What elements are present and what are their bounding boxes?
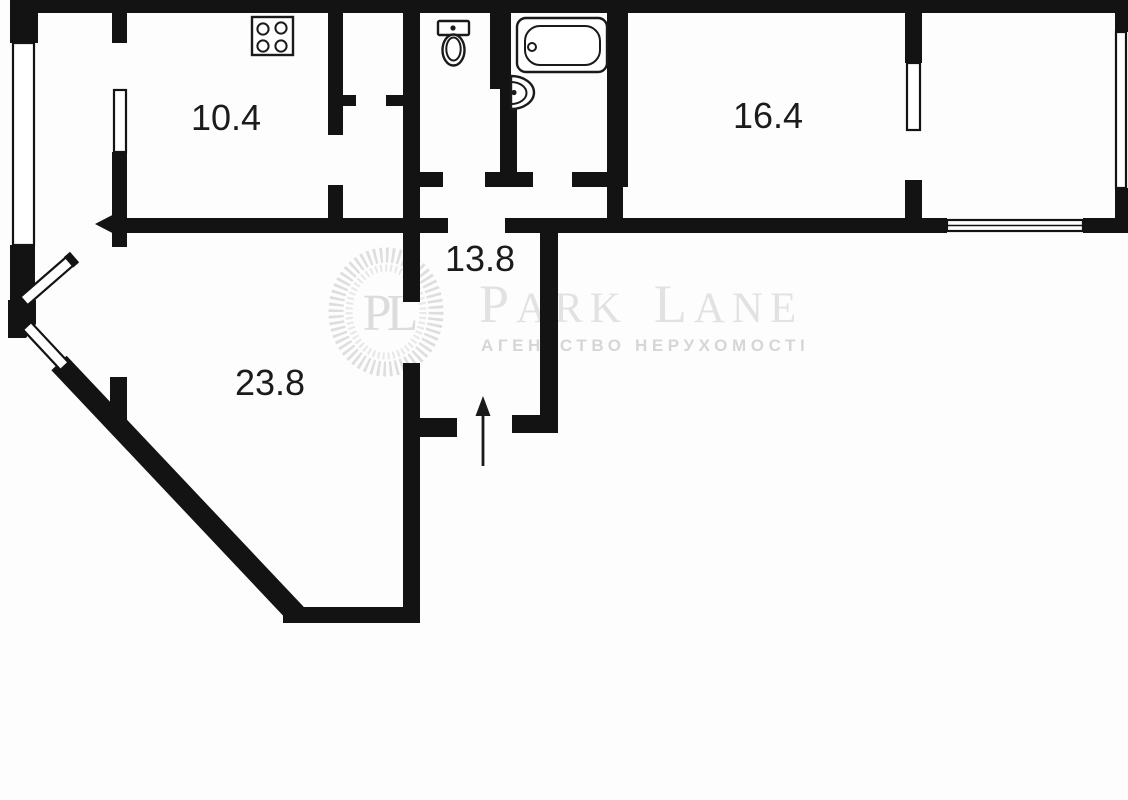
wall-pantry-tick-right: [386, 95, 403, 106]
wall-pantry-tick-left: [343, 95, 356, 106]
window-balcony-right: [1116, 32, 1126, 188]
wall-entry-stub-left: [403, 418, 457, 437]
wall-bath-bottom-left: [485, 172, 533, 187]
watermark-brand: PARKLANE: [479, 274, 803, 334]
toilet-icon: [438, 21, 469, 66]
room-label-hallway: 13.8: [445, 238, 515, 279]
window-balcony-partition: [907, 63, 920, 130]
watermark-subtitle: АГЕНТСТВО НЕРУХОМОСТІ: [481, 336, 809, 355]
floor-plan-canvas: PL PARKLANE АГЕНТСТВО НЕРУХОМОСТІ: [0, 0, 1128, 800]
wall-kitchen-left-top: [112, 13, 127, 43]
wall-wc-bath-divider-jog: [490, 75, 512, 89]
wall-horizontal-left: [120, 218, 448, 233]
wall-top: [10, 0, 1128, 13]
bathtub-icon: [517, 18, 607, 72]
wall-balcony-partition-top: [905, 13, 922, 63]
wall-entry-stub-right: [512, 415, 558, 433]
wall-main-vertical-upper: [403, 13, 420, 302]
room-label-kitchen: 10.4: [191, 97, 261, 138]
wall-wc-bottom: [403, 172, 443, 187]
wall-horizontal-right: [505, 218, 905, 233]
wall-wc-bath-divider-upper: [490, 13, 511, 75]
wall-hall-right: [540, 233, 558, 415]
window-bay-lower: [23, 322, 69, 370]
room-label-living-room: 23.8: [235, 362, 305, 403]
wall-diagonal-jamb: [110, 377, 127, 428]
floor-plan: PL PARKLANE АГЕНТСТВО НЕРУХОМОСТІ: [0, 0, 1128, 800]
wall-balcony-partition-bottom: [905, 180, 922, 218]
room-label-room-right: 16.4: [733, 95, 803, 136]
wall-kitchen-right-top: [328, 13, 343, 135]
wall-left-top-block: [10, 0, 38, 43]
entrance-arrow-icon: [476, 396, 491, 466]
wall-kitchen-right-bottom: [328, 185, 343, 218]
wall-balcony-right-bottom: [1115, 188, 1128, 233]
wall-main-vertical-lower: [403, 363, 420, 623]
window-balcony-bottom: [947, 220, 1083, 231]
wall-bath-right-tick: [607, 187, 623, 218]
window-left-wall: [13, 43, 34, 245]
wall-living-bottom: [283, 607, 420, 623]
window-kitchen-left: [114, 90, 126, 152]
wall-bath-right: [607, 13, 628, 187]
door-arrow-left-icon: [95, 210, 122, 238]
sink-icon: [511, 76, 534, 109]
wall-balcony-right-top: [1115, 0, 1128, 32]
wall-balcony-bottom-left: [905, 218, 947, 233]
stove-icon: [252, 17, 293, 55]
